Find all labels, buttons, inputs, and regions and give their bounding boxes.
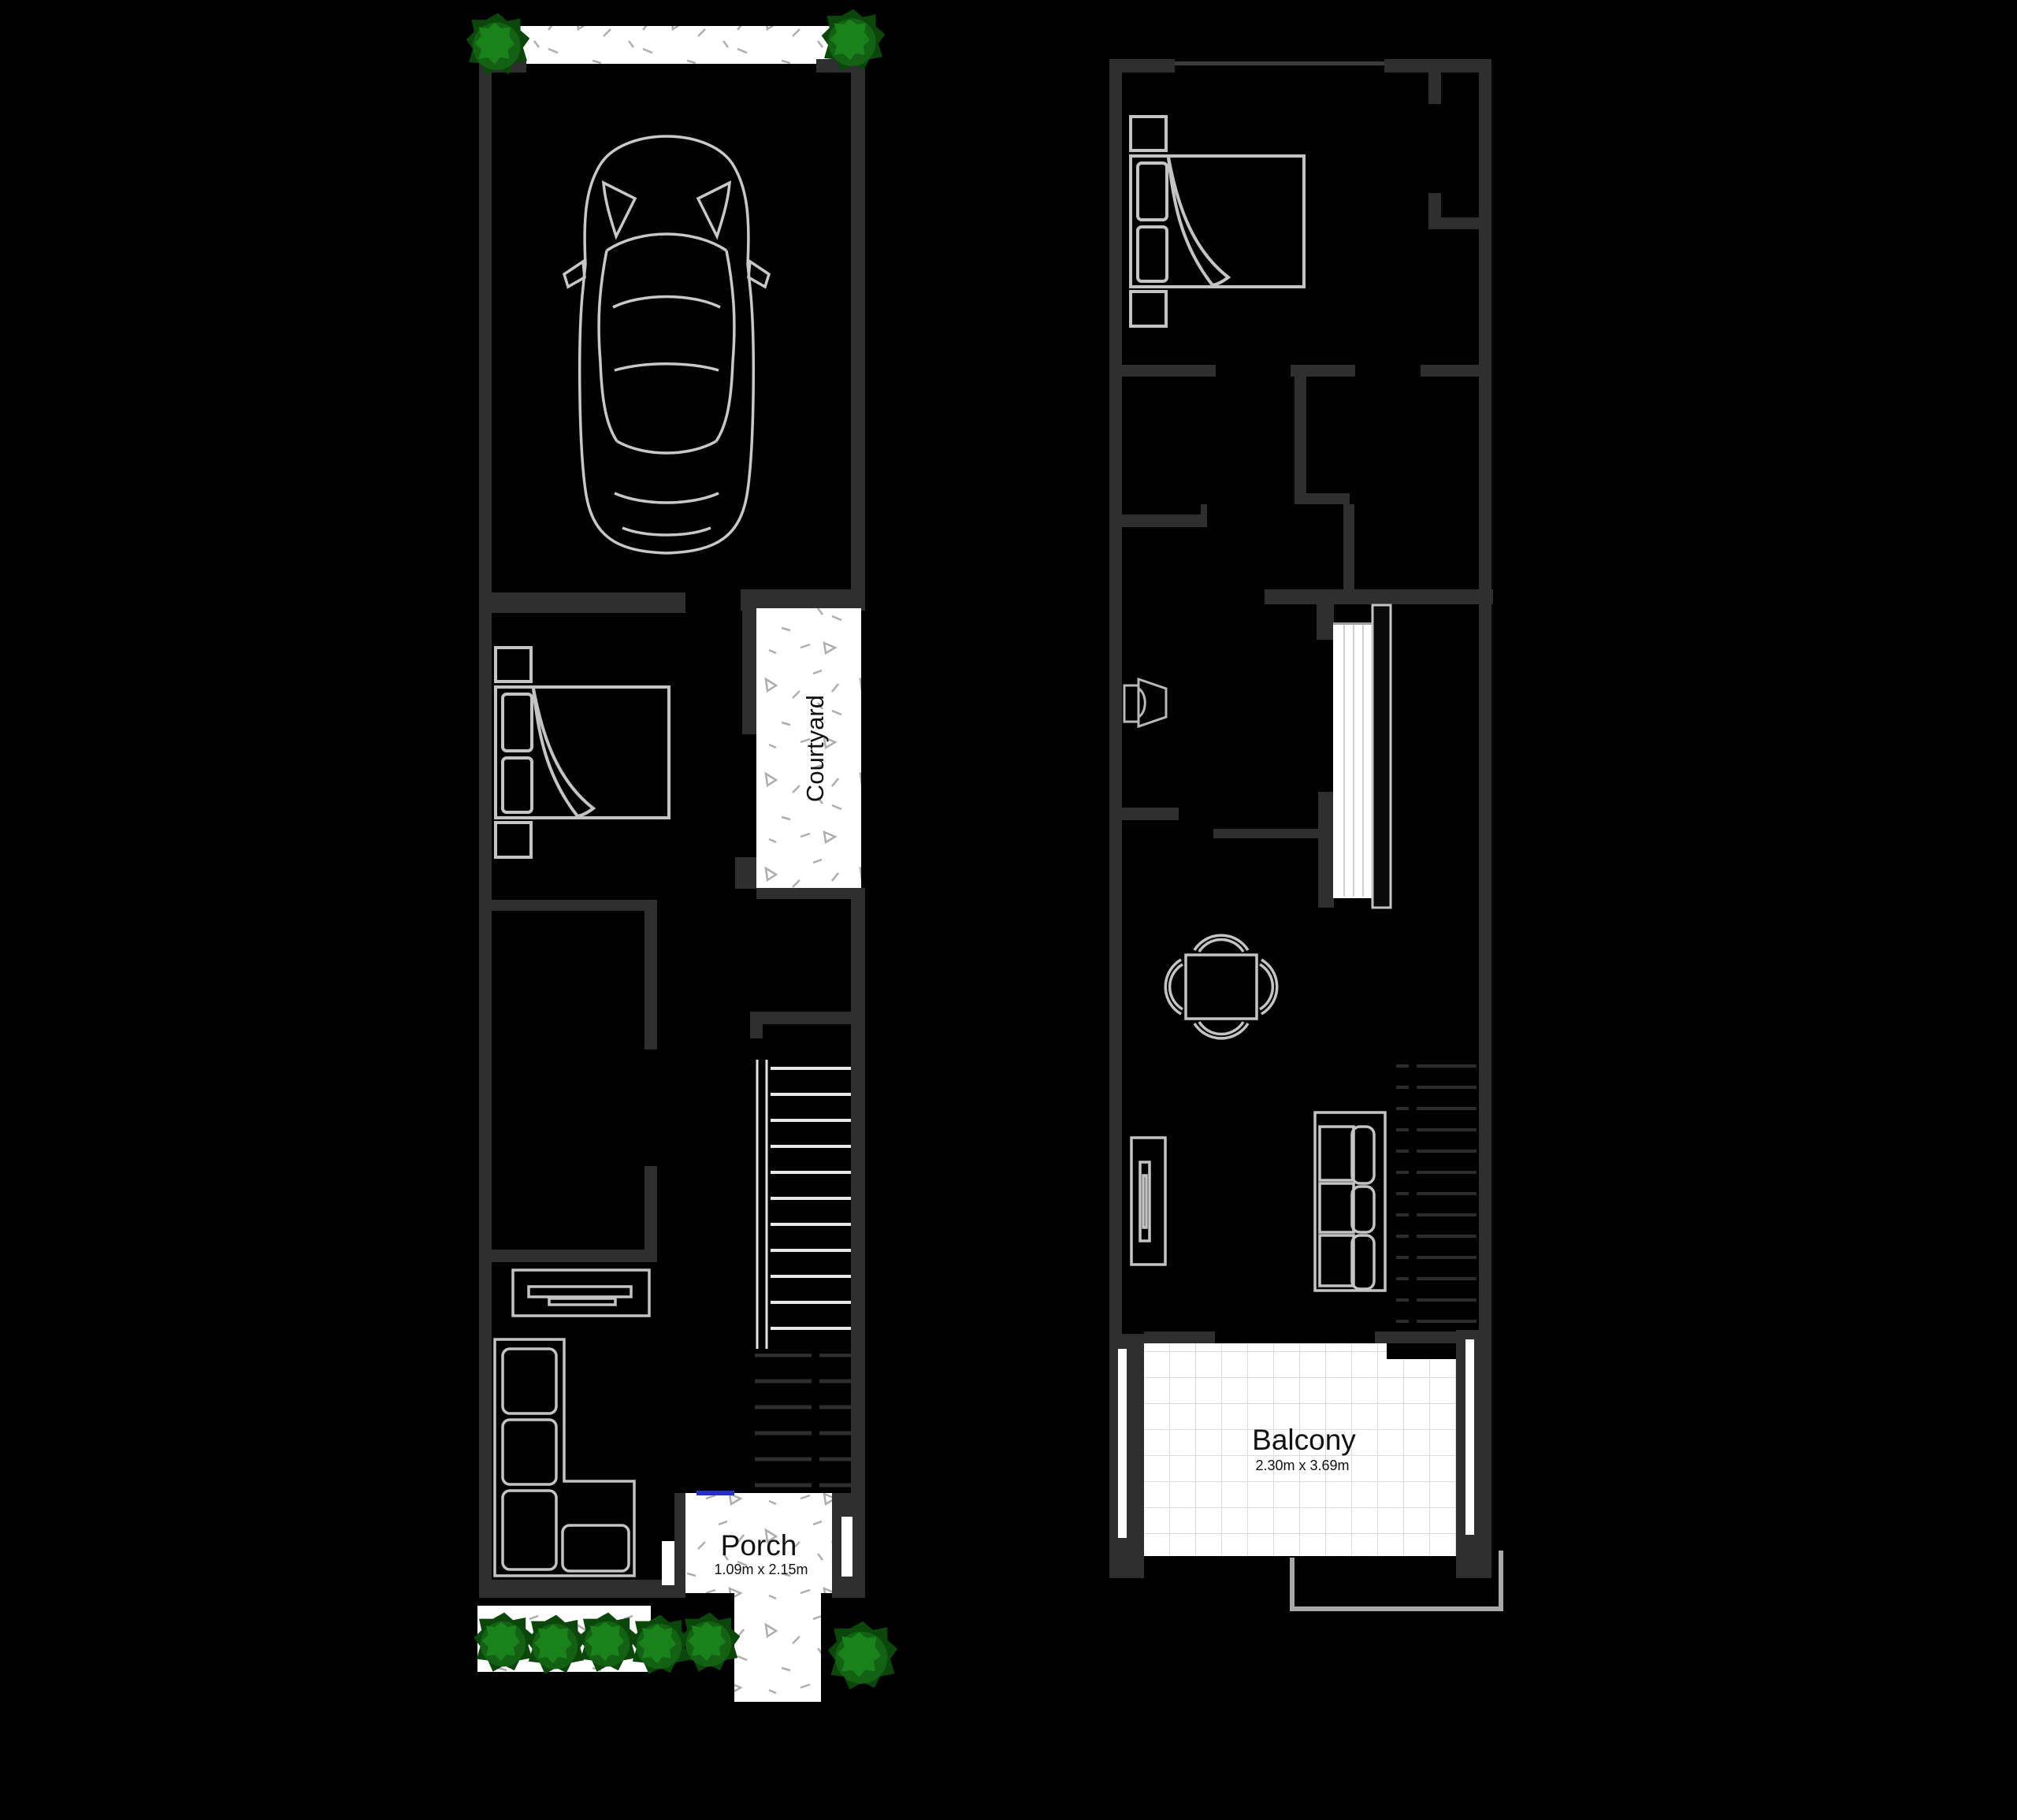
balcony-step	[1387, 1343, 1456, 1359]
front-door-marker	[696, 1491, 734, 1495]
floor-plan-canvas: Courtyard	[0, 0, 2017, 1820]
driveway	[514, 26, 838, 64]
stair-railing	[1373, 605, 1391, 908]
stair-treads-upper	[771, 1060, 851, 1349]
porch-label: Porch	[721, 1529, 797, 1562]
window-line	[1175, 61, 1384, 65]
window-slot	[1118, 1349, 1127, 1538]
background	[0, 0, 2017, 1820]
floor-plan-svg: Courtyard	[0, 0, 2017, 1820]
first-staircase	[1333, 605, 1391, 908]
porch-dims: 1.09m x 2.15m	[714, 1562, 808, 1577]
stair-void	[1396, 1060, 1477, 1332]
porch-walkway	[734, 1593, 821, 1702]
balcony-dims: 2.30m x 3.69m	[1255, 1458, 1349, 1473]
balcony: Balcony 2.30m x 3.69m	[1118, 1339, 1474, 1556]
window-slot	[1465, 1339, 1474, 1535]
window-slot	[841, 1517, 852, 1577]
balcony-label: Balcony	[1252, 1424, 1356, 1456]
window-slot	[662, 1541, 674, 1585]
stair-treads-lower	[755, 1354, 851, 1491]
courtyard-label: Courtyard	[801, 695, 829, 802]
